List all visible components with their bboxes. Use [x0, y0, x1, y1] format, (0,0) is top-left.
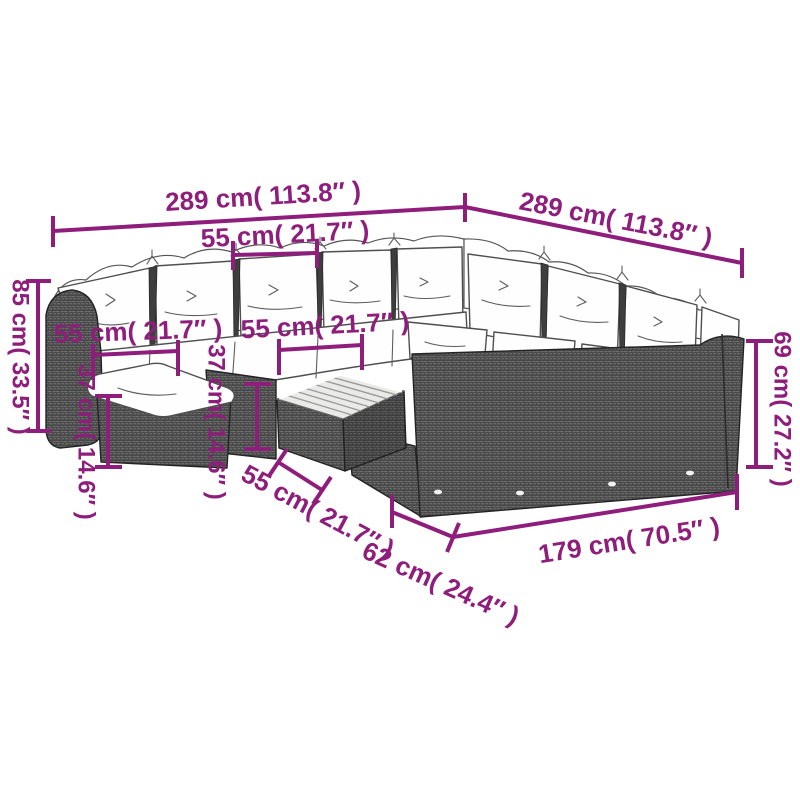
dimension-label: 37 cm( 14.6″ ) — [73, 364, 100, 520]
right-section-front — [412, 336, 744, 517]
dimension-line — [233, 253, 317, 255]
dimension-total-height-left: 85 cm( 33.5″ ) — [7, 279, 52, 435]
dimension-label: 69 cm( 27.2″ ) — [769, 331, 796, 487]
dimension-label: 85 cm( 33.5″ ) — [7, 279, 34, 435]
sofa-set-illustration — [46, 233, 744, 517]
dimension-label: 289 cm( 113.8″ ) — [517, 186, 715, 253]
diagram-canvas: 289 cm( 113.8″ ) 289 cm( 113.8″ ) 55 cm(… — [0, 0, 800, 800]
dimension-label: 37 cm( 14.6″ ) — [203, 344, 230, 500]
dimension-label: 62 cm( 24.4″ ) — [358, 535, 524, 631]
dimension-diagram: 289 cm( 113.8″ ) 289 cm( 113.8″ ) 55 cm(… — [0, 0, 800, 800]
dimension-label: 289 cm( 113.8″ ) — [164, 175, 361, 217]
dimension-label: 55 cm( 21.7″ ) — [53, 313, 222, 349]
dimension-seat-height-right: 69 cm( 27.2″ ) — [746, 331, 796, 487]
